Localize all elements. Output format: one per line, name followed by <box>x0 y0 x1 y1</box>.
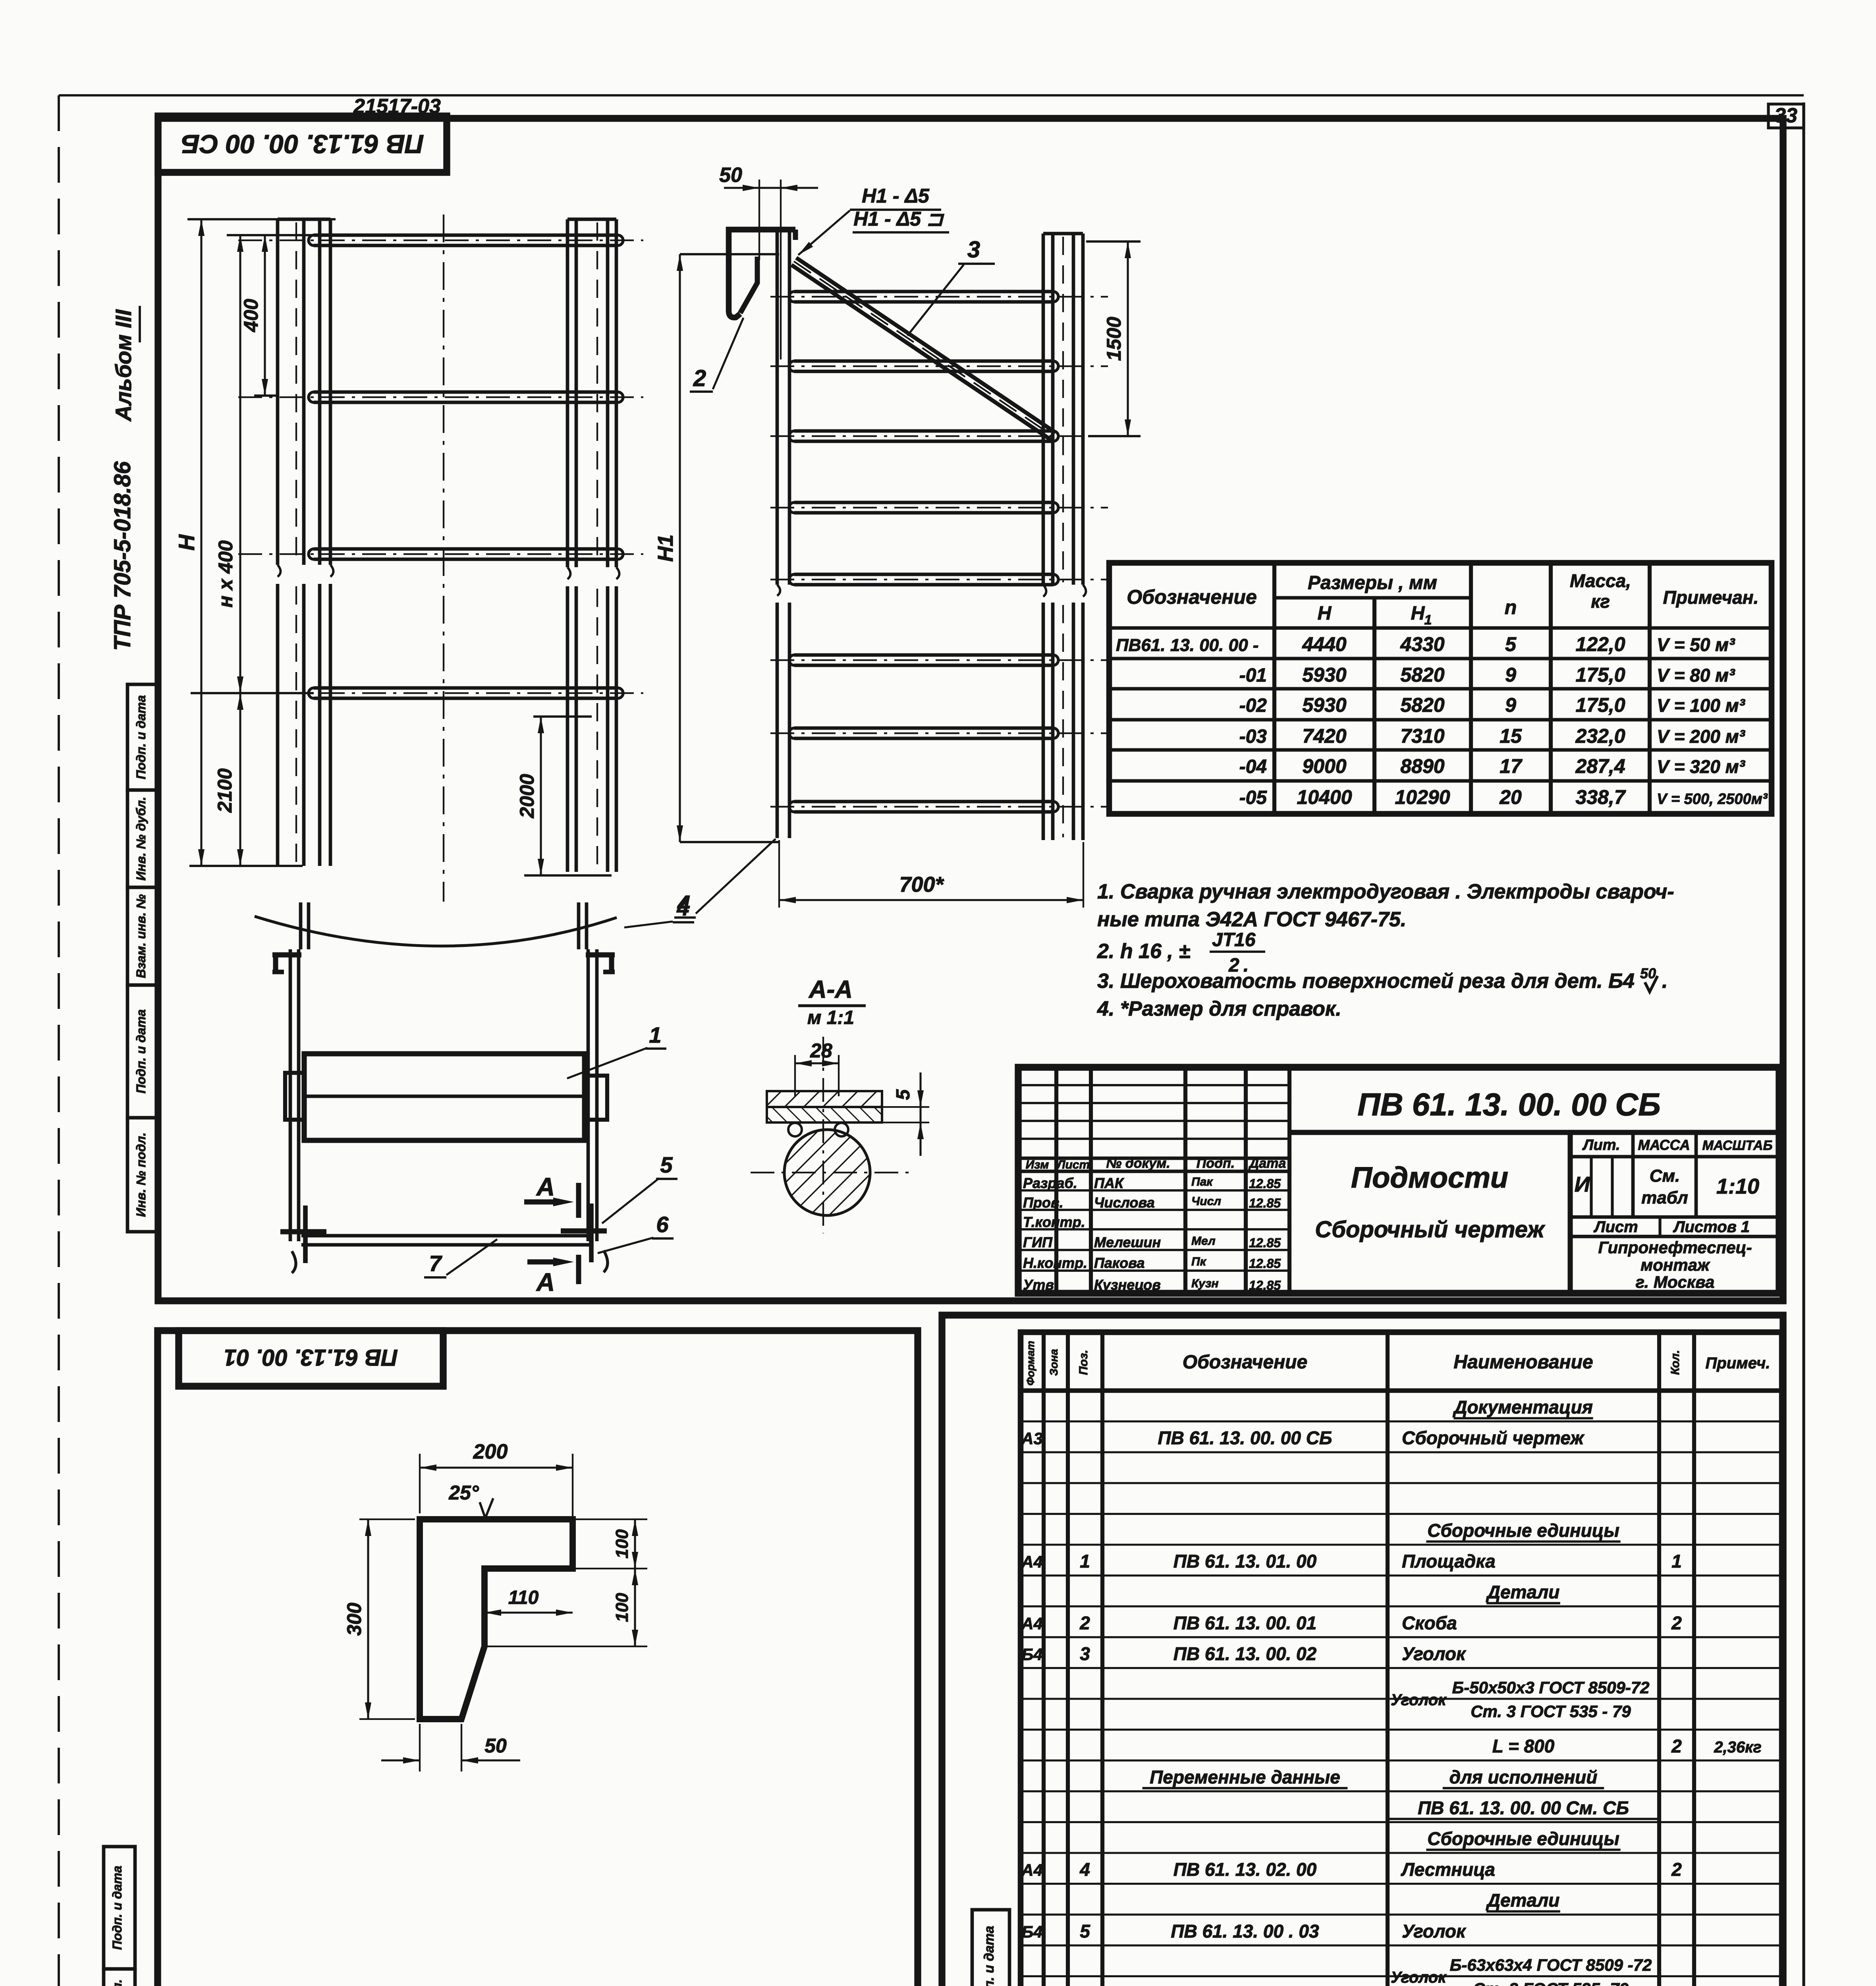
svg-text:Н1 - Δ5: Н1 - Δ5 <box>862 185 930 207</box>
svg-text:Поз.: Поз. <box>1077 1350 1090 1375</box>
svg-text:См.: См. <box>1650 1166 1680 1186</box>
svg-text:2: 2 <box>1671 1859 1682 1880</box>
svg-text:10400: 10400 <box>1297 786 1352 808</box>
svg-text:ПВ 61. 13. 00. 01: ПВ 61. 13. 00. 01 <box>1173 1613 1316 1633</box>
svg-text:4: 4 <box>676 895 689 920</box>
svg-text:Сборочные единицы: Сборочные единицы <box>1427 1828 1619 1849</box>
svg-text:Гипронефтеспец-: Гипронефтеспец- <box>1598 1238 1752 1257</box>
svg-text:2,36кг: 2,36кг <box>1714 1739 1761 1756</box>
svg-text:V = 80 м³: V = 80 м³ <box>1657 665 1735 686</box>
svg-text:V = 50 м³: V = 50 м³ <box>1657 634 1735 655</box>
svg-text:Примеч.: Примеч. <box>1706 1354 1770 1372</box>
svg-text:.: . <box>1662 970 1668 993</box>
svg-text:Ст. 3 ГОСТ 535 - 79: Ст. 3 ГОСТ 535 - 79 <box>1471 1702 1631 1721</box>
svg-text:Утв.: Утв. <box>1023 1277 1058 1293</box>
svg-text:Переменные данные: Переменные данные <box>1150 1767 1340 1787</box>
svg-text:4. *Размер для справок.: 4. *Размер для справок. <box>1097 997 1341 1020</box>
svg-text:1: 1 <box>1080 1551 1090 1572</box>
svg-text:Детали: Детали <box>1486 1890 1560 1911</box>
svg-text:Лестница: Лестница <box>1401 1859 1495 1880</box>
svg-text:Формат: Формат <box>1025 1341 1036 1386</box>
svg-text:Пк: Пк <box>1191 1255 1207 1268</box>
svg-text:4330: 4330 <box>1400 633 1444 655</box>
svg-text:7420: 7420 <box>1302 725 1346 747</box>
svg-text:Примечан.: Примечан. <box>1663 587 1759 608</box>
svg-text:6: 6 <box>656 1212 669 1237</box>
svg-text:ПВ 61.13. 00. 00 СБ: ПВ 61.13. 00. 00 СБ <box>181 129 424 159</box>
svg-text:1: 1 <box>649 1022 661 1047</box>
svg-text:Взам. инв. №: Взам. инв. № <box>134 894 148 978</box>
svg-text:25°: 25° <box>448 1482 479 1504</box>
svg-text:Дата: Дата <box>1248 1156 1286 1171</box>
svg-text:8890: 8890 <box>1400 755 1444 777</box>
svg-text:175,0: 175,0 <box>1575 694 1625 716</box>
svg-text:Н: Н <box>1318 603 1332 624</box>
svg-text:12.85: 12.85 <box>1249 1177 1281 1191</box>
svg-text:28: 28 <box>810 1039 832 1062</box>
svg-text:Числова: Числова <box>1094 1194 1155 1211</box>
svg-text:1: 1 <box>1424 612 1432 628</box>
svg-text:50: 50 <box>719 164 742 187</box>
svg-text:Сборочный чертеж: Сборочный чертеж <box>1402 1428 1585 1448</box>
svg-text:4440: 4440 <box>1302 633 1346 655</box>
svg-text:ПВ61. 13. 00. 00 -: ПВ61. 13. 00. 00 - <box>1116 636 1258 655</box>
svg-text:Н: Н <box>1411 603 1425 624</box>
svg-text:Пак: Пак <box>1191 1175 1213 1188</box>
svg-text:V = 320 м³: V = 320 м³ <box>1657 756 1746 777</box>
svg-text:12.85: 12.85 <box>1249 1236 1281 1250</box>
svg-text:Листов 1: Листов 1 <box>1673 1218 1750 1236</box>
svg-text:9: 9 <box>1505 694 1516 716</box>
svg-text:ПВ 61. 13. 00. 02: ПВ 61. 13. 00. 02 <box>1173 1643 1317 1664</box>
svg-text:Лист: Лист <box>1056 1158 1090 1171</box>
svg-text:2: 2 <box>1671 1736 1682 1756</box>
svg-text:Альбом III: Альбом III <box>111 309 136 422</box>
svg-text:ПВ 61. 13. 00. 00 См. СБ: ПВ 61. 13. 00. 00 См. СБ <box>1418 1797 1629 1818</box>
svg-text:Т.контр.: Т.контр. <box>1023 1214 1085 1230</box>
svg-text:Сборочные единицы: Сборочные единицы <box>1427 1520 1619 1541</box>
svg-text:17: 17 <box>1500 755 1523 777</box>
svg-text:100: 100 <box>612 1529 632 1559</box>
svg-text:И: И <box>1575 1173 1590 1196</box>
svg-text:Кузнецов: Кузнецов <box>1094 1277 1161 1293</box>
svg-text:20: 20 <box>1499 786 1522 808</box>
svg-text:А4: А4 <box>1021 1614 1043 1633</box>
svg-text:Уголок: Уголок <box>1391 1969 1447 1986</box>
svg-text:Ст. 3 ГОСТ 535 -79: Ст. 3 ГОСТ 535 -79 <box>1473 1979 1629 1986</box>
svg-text:2000: 2000 <box>516 774 538 818</box>
svg-text:Документация: Документация <box>1452 1397 1593 1418</box>
svg-text:Лист: Лист <box>1593 1218 1638 1236</box>
svg-text:Инв. № дубл.: Инв. № дубл. <box>134 797 148 881</box>
svg-text:табл: табл <box>1641 1188 1688 1207</box>
svg-text:Б4: Б4 <box>1021 1922 1042 1941</box>
svg-text:5930: 5930 <box>1302 664 1346 686</box>
svg-text:1:10: 1:10 <box>1716 1175 1759 1198</box>
svg-text:А: А <box>536 1173 555 1201</box>
svg-text:400: 400 <box>240 299 262 332</box>
svg-text:JТ16: JТ16 <box>1212 929 1256 950</box>
svg-text:H: H <box>174 534 199 551</box>
svg-text:5: 5 <box>1080 1921 1090 1942</box>
svg-text:9: 9 <box>1505 664 1516 686</box>
svg-text:Н1: Н1 <box>654 534 677 562</box>
svg-text:2100: 2100 <box>214 768 236 813</box>
svg-text:2: 2 <box>1671 1613 1682 1633</box>
svg-text:ПВ 61. 13. 02. 00: ПВ 61. 13. 02. 00 <box>1173 1859 1317 1880</box>
svg-text:2: 2 <box>1079 1613 1090 1633</box>
svg-text:122,0: 122,0 <box>1575 633 1625 655</box>
svg-text:Изм: Изм <box>1026 1158 1049 1171</box>
svg-text:300: 300 <box>343 1603 365 1636</box>
svg-text:Разраб.: Разраб. <box>1023 1175 1077 1191</box>
svg-text:МАСШТАБ: МАСШТАБ <box>1702 1138 1772 1153</box>
svg-text:Н1 - Δ5 ⊐: Н1 - Δ5 ⊐ <box>853 208 944 230</box>
svg-text:Уголок: Уголок <box>1402 1921 1467 1942</box>
svg-text:12.85: 12.85 <box>1249 1196 1281 1210</box>
svg-text:кг: кг <box>1591 591 1610 612</box>
svg-text:Детали: Детали <box>1486 1582 1560 1602</box>
svg-text:-05: -05 <box>1239 787 1268 808</box>
svg-text:Числ: Числ <box>1191 1195 1221 1208</box>
svg-text:-02: -02 <box>1239 695 1267 716</box>
svg-text:А4: А4 <box>1021 1861 1043 1880</box>
svg-text:Н.контр.: Н.контр. <box>1023 1255 1087 1271</box>
svg-text:Обозначение: Обозначение <box>1127 586 1257 608</box>
svg-text:Подп. и дата: Подп. и дата <box>110 1866 124 1950</box>
svg-text:Сборочный чертеж: Сборочный чертеж <box>1315 1217 1546 1242</box>
svg-text:110: 110 <box>508 1587 539 1608</box>
svg-text:Уголок: Уголок <box>1391 1691 1447 1709</box>
svg-text:50: 50 <box>484 1735 507 1757</box>
svg-text:Б-50х50х3 ГОСТ 8509-72: Б-50х50х3 ГОСТ 8509-72 <box>1452 1678 1650 1697</box>
svg-text:ПВ 61. 13. 00 . 03: ПВ 61. 13. 00 . 03 <box>1171 1921 1319 1942</box>
svg-text:1: 1 <box>1671 1551 1682 1572</box>
svg-text:Зона: Зона <box>1048 1349 1060 1376</box>
svg-text:ГИП: ГИП <box>1023 1234 1053 1250</box>
svg-text:ПАК: ПАК <box>1094 1175 1125 1191</box>
svg-text:ПВ 61. 13. 00. 00 СБ: ПВ 61. 13. 00. 00 СБ <box>1158 1428 1332 1448</box>
svg-text:А: А <box>536 1268 555 1296</box>
svg-text:ПВ 61. 13. 00. 00 СБ: ПВ 61. 13. 00. 00 СБ <box>1357 1087 1660 1122</box>
svg-text:-01: -01 <box>1239 665 1267 686</box>
svg-text:4: 4 <box>1079 1859 1090 1880</box>
svg-text:А4: А4 <box>1021 1553 1043 1571</box>
svg-text:ТПР 705-5-018.86: ТПР 705-5-018.86 <box>110 461 135 651</box>
svg-text:L = 800: L = 800 <box>1492 1736 1555 1756</box>
svg-text:Подп. и дата: Подп. и дата <box>982 1926 997 1986</box>
svg-text:Подп.: Подп. <box>1197 1156 1235 1171</box>
svg-text:1. Сварка ручная электродугова: 1. Сварка ручная электродуговая . Электр… <box>1097 880 1674 903</box>
svg-text:Обозначение: Обозначение <box>1183 1352 1307 1373</box>
svg-text:15: 15 <box>1500 725 1522 747</box>
svg-text:3. Шероховатость поверхностей: 3. Шероховатость поверхностей реза для д… <box>1097 970 1635 993</box>
svg-text:Площадка: Площадка <box>1402 1551 1496 1572</box>
svg-text:175,0: 175,0 <box>1575 664 1625 686</box>
svg-text:Подмости: Подмости <box>1351 1161 1508 1194</box>
svg-text:700*: 700* <box>899 873 944 896</box>
svg-text:Мел: Мел <box>1191 1234 1216 1248</box>
svg-text:50: 50 <box>1640 965 1656 981</box>
svg-text:Мелешин: Мелешин <box>1094 1234 1161 1250</box>
svg-text:V = 200 м³: V = 200 м³ <box>1657 726 1746 747</box>
svg-text:г. Москва: г. Москва <box>1636 1273 1715 1291</box>
svg-text:Подп. и дата: Подп. и дата <box>134 695 148 779</box>
svg-text:ПВ 61.13. 00. 01: ПВ 61.13. 00. 01 <box>224 1345 398 1370</box>
svg-text:2: 2 <box>693 365 706 391</box>
svg-text:для исполнений: для исполнений <box>1449 1767 1598 1787</box>
svg-text:н х 400: н х 400 <box>214 540 237 607</box>
svg-text:Кузн: Кузн <box>1191 1277 1219 1290</box>
svg-text:10290: 10290 <box>1395 786 1450 808</box>
svg-text:5: 5 <box>1505 633 1517 655</box>
svg-text:12.85: 12.85 <box>1249 1256 1281 1271</box>
svg-text:5930: 5930 <box>1302 694 1346 716</box>
svg-text:5820: 5820 <box>1400 664 1444 686</box>
svg-text:Б-63х63х4 ГОСТ 8509 -72: Б-63х63х4 ГОСТ 8509 -72 <box>1450 1955 1652 1974</box>
svg-text:200: 200 <box>473 1440 508 1463</box>
svg-text:Пакова: Пакова <box>1094 1255 1145 1271</box>
svg-text:МАССА: МАССА <box>1638 1137 1690 1153</box>
svg-text:2. h 16 , ±: 2. h 16 , ± <box>1097 940 1190 963</box>
svg-text:100: 100 <box>612 1593 632 1622</box>
svg-text:7: 7 <box>429 1251 442 1276</box>
svg-text:А3: А3 <box>1021 1429 1043 1448</box>
svg-text:Б4: Б4 <box>1021 1645 1042 1663</box>
svg-text:5820: 5820 <box>1400 694 1444 716</box>
svg-text:Кол.: Кол. <box>1669 1350 1682 1375</box>
svg-text:м 1:1: м 1:1 <box>807 1007 854 1028</box>
svg-text:-04: -04 <box>1239 756 1267 777</box>
svg-text:5: 5 <box>893 1089 914 1100</box>
svg-text:Лит.: Лит. <box>1582 1137 1620 1153</box>
svg-text:Масса,: Масса, <box>1570 570 1631 591</box>
svg-text:12.85: 12.85 <box>1249 1278 1281 1292</box>
svg-text:монтаж: монтаж <box>1641 1256 1710 1274</box>
svg-text:ные типа Э42А ГОСТ 9467-75.: ные типа Э42А ГОСТ 9467-75. <box>1097 908 1406 931</box>
svg-text:3: 3 <box>967 237 980 263</box>
svg-text:Уголок: Уголок <box>1402 1643 1467 1664</box>
svg-text:№ докум.: № докум. <box>1106 1156 1170 1171</box>
svg-text:3: 3 <box>1080 1643 1090 1664</box>
svg-text:V = 100 м³: V = 100 м³ <box>1657 695 1746 716</box>
svg-text:7310: 7310 <box>1400 725 1444 747</box>
svg-text:А-А: А-А <box>808 976 853 1003</box>
svg-text:287,4: 287,4 <box>1575 755 1625 777</box>
svg-text:Наименование: Наименование <box>1453 1352 1593 1373</box>
svg-text:Пров.: Пров. <box>1023 1194 1063 1211</box>
svg-text:338,7: 338,7 <box>1575 786 1626 808</box>
svg-text:1500: 1500 <box>1103 317 1125 361</box>
svg-text:Инв. № дубл.: Инв. № дубл. <box>110 1979 124 1986</box>
svg-text:ПВ 61. 13. 01. 00: ПВ 61. 13. 01. 00 <box>1173 1551 1317 1572</box>
svg-text:Размеры , мм: Размеры , мм <box>1308 572 1437 593</box>
svg-text:Инв. № подл.: Инв. № подл. <box>134 1132 148 1217</box>
svg-text:-03: -03 <box>1239 726 1267 747</box>
svg-text:Скоба: Скоба <box>1402 1613 1457 1633</box>
svg-text:n: n <box>1505 596 1517 618</box>
svg-text:5: 5 <box>660 1152 673 1177</box>
svg-text:232,0: 232,0 <box>1575 725 1625 747</box>
svg-text:9000: 9000 <box>1302 755 1346 777</box>
svg-text:V = 500, 2500м³: V = 500, 2500м³ <box>1657 791 1768 808</box>
svg-text:Подп. и дата: Подп. и дата <box>134 1009 148 1093</box>
